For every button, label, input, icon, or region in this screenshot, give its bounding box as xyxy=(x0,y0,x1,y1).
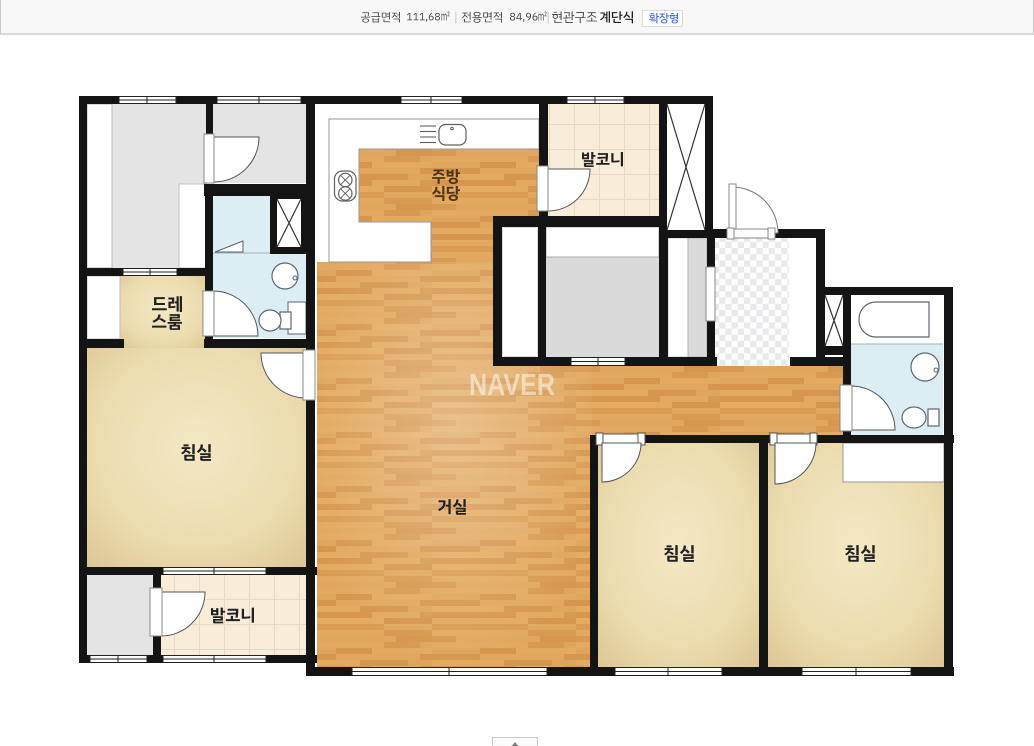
svg-text:NAVER: NAVER xyxy=(469,366,555,401)
